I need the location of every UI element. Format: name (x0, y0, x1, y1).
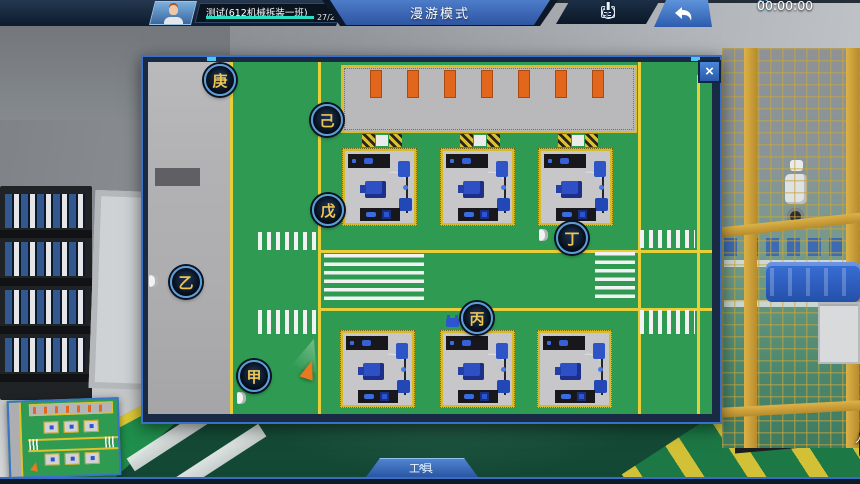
workbench-top (346, 336, 388, 350)
part-icon (403, 185, 408, 190)
workbench-bottom (458, 390, 498, 403)
scene-shelf-unit (818, 302, 860, 364)
tool-cabinet (496, 343, 508, 359)
workbench-top (543, 336, 585, 350)
map-marker-wu[interactable]: 戊 (312, 194, 344, 226)
part-icon (547, 341, 551, 345)
part-icon (562, 212, 572, 217)
tool-cabinet (496, 161, 508, 177)
avatar-body (164, 17, 183, 25)
machine-icon (463, 363, 484, 380)
crosswalk (324, 254, 424, 304)
part-icon (501, 367, 506, 372)
avatar-head (169, 5, 178, 15)
minimap-cell (65, 452, 80, 465)
progress-track (206, 16, 314, 20)
workbench-bottom (458, 208, 498, 221)
crosswalk (595, 252, 635, 300)
tools-tab[interactable]: 工具 « (366, 458, 478, 477)
hazard-strip (585, 134, 598, 147)
map-marker-bing[interactable]: 丙 (461, 302, 493, 334)
poi-icon (539, 229, 548, 241)
machine-icon (560, 363, 581, 380)
hazard-strip (389, 134, 402, 147)
crosswalk (640, 310, 695, 334)
part-icon (577, 392, 586, 401)
tool-cart (497, 198, 510, 211)
mini-robot-icon (446, 318, 459, 327)
workbench-top (544, 154, 586, 168)
fence-post (744, 48, 757, 448)
crosswalk (640, 230, 695, 248)
part-icon (480, 210, 489, 219)
part-icon (380, 392, 389, 401)
crosswalk (258, 310, 318, 334)
part-icon (548, 159, 552, 163)
shelf-board (0, 278, 92, 286)
scene-bookshelf (0, 186, 92, 400)
part-icon (561, 394, 571, 399)
workstation-cell (342, 148, 417, 226)
dock-door (370, 70, 382, 98)
mode-title: 漫游模式 (330, 0, 550, 25)
dock-doorway (572, 135, 584, 146)
part-icon (560, 158, 569, 164)
factory-map[interactable]: 庚己戊乙甲丁丙 (148, 62, 712, 414)
map-grey-zone (148, 62, 230, 414)
road-line (318, 250, 712, 253)
player-info-inner: 测试(612机械拆装一班) 27/27 (198, 4, 346, 22)
dock-door (481, 70, 493, 98)
part-icon (462, 340, 471, 346)
workstation-cell (440, 148, 515, 226)
back-arrow-icon (672, 5, 694, 23)
workbench-bottom (556, 208, 596, 221)
minimap-cell (85, 452, 100, 465)
part-icon (464, 394, 474, 399)
machine-icon (561, 181, 582, 198)
map-marker-ji[interactable]: 己 (311, 104, 343, 136)
progress-fill (206, 16, 314, 20)
tool-cart (497, 380, 510, 393)
tool-cabinet (594, 161, 606, 177)
shelf-board (0, 326, 92, 334)
part-icon (462, 158, 471, 164)
workbench-bottom (360, 208, 400, 221)
hazard-strip (362, 134, 375, 147)
dock-doorway (376, 135, 388, 146)
tool-cart (399, 198, 412, 211)
workbench-top (348, 154, 390, 168)
close-map-button[interactable]: × (698, 60, 721, 83)
map-marker-geng[interactable]: 庚 (204, 64, 236, 96)
machine-icon (463, 181, 484, 198)
road-line (697, 75, 700, 414)
part-icon (352, 159, 356, 163)
scene-blue-machine (766, 262, 860, 302)
minimap[interactable] (7, 397, 122, 479)
minimap-road-line (28, 447, 118, 452)
equipment-label: 人物装备 (855, 430, 860, 446)
workbench-bottom (555, 390, 595, 403)
workbench-top (446, 336, 488, 350)
minimap-cell (63, 420, 78, 433)
hazard-strip (460, 134, 473, 147)
bottom-bar (0, 479, 860, 484)
workstation-cell (440, 330, 515, 408)
tool-cabinet (398, 161, 410, 177)
dock-door (592, 70, 604, 98)
workbench-top (446, 154, 488, 168)
road-line (230, 62, 233, 414)
binder-row (5, 338, 85, 372)
minimap-cell (43, 421, 58, 434)
tool-cabinet (396, 343, 408, 359)
crosswalk (258, 232, 318, 250)
dock-door (407, 70, 419, 98)
part-icon (450, 159, 454, 163)
part-icon (366, 212, 376, 217)
workbench-bottom (358, 390, 398, 403)
part-icon (464, 212, 474, 217)
minimap-cell (45, 453, 60, 466)
shelf-board (0, 374, 92, 382)
power-icon[interactable] (602, 6, 615, 19)
timer-value: 00:00:00 (757, 0, 813, 13)
minimap-crosswalk (29, 439, 39, 450)
part-icon (364, 394, 374, 399)
tool-cart (594, 380, 607, 393)
poi-icon (149, 275, 158, 287)
minimap-cell (83, 420, 98, 433)
shelf-board (0, 230, 92, 238)
top-icons (556, 0, 660, 24)
machine-icon (363, 363, 384, 380)
fence-post (846, 48, 859, 448)
map-marker-yi[interactable]: 乙 (170, 266, 202, 298)
part-icon (599, 185, 604, 190)
poi-icon (237, 392, 246, 404)
dock-door (555, 70, 567, 98)
fence-mesh (722, 48, 860, 448)
app-root: 测试(612机械拆装一班) 27/27 漫游模式 00:00:00 (0, 0, 860, 484)
scene-safety-fence (722, 48, 860, 448)
dock-door (518, 70, 530, 98)
workstation-cell (340, 330, 415, 408)
minimap-player-arrow (30, 461, 40, 472)
avatar-figure (153, 2, 193, 24)
binder-row (5, 194, 85, 228)
dock-door (444, 70, 456, 98)
tool-cart (397, 380, 410, 393)
minimap-grey-zone (9, 402, 24, 478)
map-marker-ding[interactable]: 丁 (556, 222, 588, 254)
part-icon (578, 210, 587, 219)
dock-doorway (474, 135, 486, 146)
part-icon (401, 367, 406, 372)
part-icon (362, 340, 371, 346)
map-grey-rect (155, 168, 200, 186)
binder-row (5, 290, 85, 324)
part-icon (480, 392, 489, 401)
workstation-cell (537, 330, 612, 408)
minimap-crosswalk (105, 436, 115, 447)
part-icon (501, 185, 506, 190)
hazard-strip (558, 134, 571, 147)
part-icon (350, 341, 354, 345)
binder-row (5, 242, 85, 276)
chevron-up-double-icon: « (415, 463, 429, 473)
hazard-strip (487, 134, 500, 147)
map-marker-jia[interactable]: 甲 (238, 360, 270, 392)
part-icon (559, 340, 568, 346)
part-icon (382, 210, 391, 219)
part-icon (598, 367, 603, 372)
tool-cart (595, 198, 608, 211)
minimap-dock (29, 401, 113, 416)
machine-icon (365, 181, 386, 198)
workstation-cell (538, 148, 613, 226)
frame-tick (207, 57, 216, 61)
part-icon (364, 158, 373, 164)
part-icon (450, 341, 454, 345)
factory-map-panel: 庚己戊乙甲丁丙 × (141, 55, 722, 424)
tool-cabinet (593, 343, 605, 359)
avatar[interactable] (149, 1, 197, 25)
